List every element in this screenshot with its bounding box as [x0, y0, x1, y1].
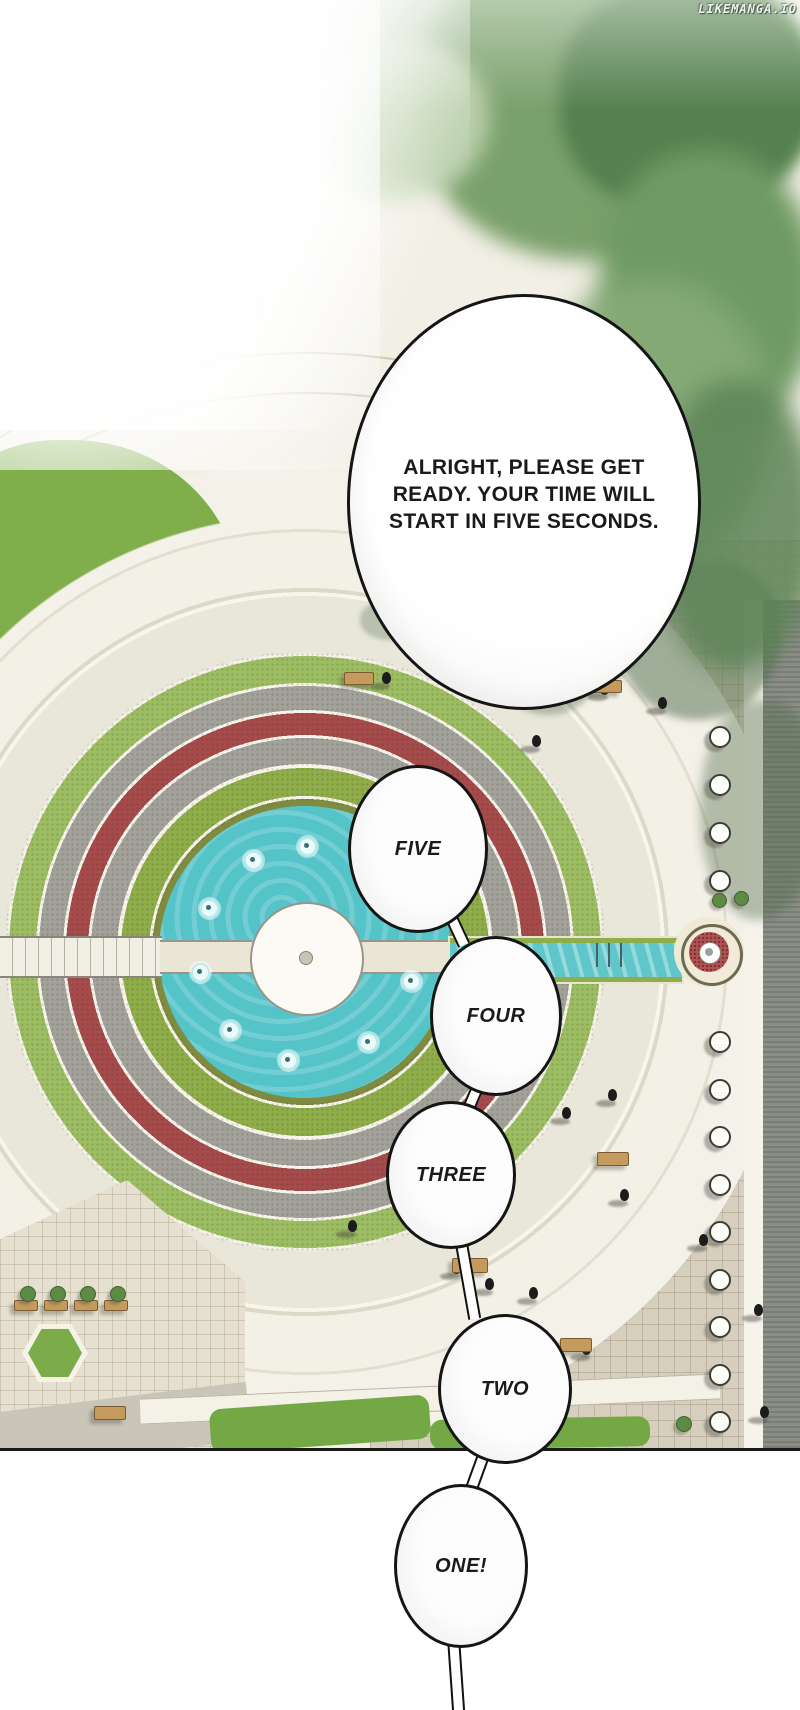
person-shadow [520, 746, 540, 753]
bollard [709, 726, 731, 748]
announcement-line-2: READY. YOUR TIME WILL [389, 481, 659, 508]
speech-bubble-two: TWO [438, 1314, 572, 1464]
person [699, 1234, 708, 1246]
fountain-jet [221, 1021, 240, 1040]
fountain-jet [279, 1051, 298, 1070]
person [562, 1107, 571, 1119]
bubble-tail [447, 1638, 465, 1710]
bench [597, 1152, 629, 1166]
bollard [709, 822, 731, 844]
small-tree [20, 1286, 36, 1302]
bollard [709, 1364, 731, 1386]
small-tree [110, 1286, 126, 1302]
small-tree [50, 1286, 66, 1302]
speech-bubble-one: ONE! [394, 1484, 528, 1648]
person [348, 1220, 357, 1232]
countdown-four-label: FOUR [467, 1005, 526, 1028]
person [658, 697, 667, 709]
fountain-statue [705, 948, 713, 956]
bollard [709, 1411, 731, 1433]
channel-gate [596, 943, 598, 967]
fountain-jet [200, 899, 219, 918]
person-shadow [570, 1354, 590, 1361]
bollard [709, 1031, 731, 1053]
countdown-three-label: THREE [416, 1164, 486, 1187]
bench [560, 1338, 592, 1352]
person [754, 1304, 763, 1316]
bollard [709, 870, 731, 892]
person [608, 1089, 617, 1101]
island-center [299, 951, 313, 965]
person [485, 1278, 494, 1290]
channel-gate [608, 943, 610, 967]
bollard [709, 774, 731, 796]
countdown-five-label: FIVE [395, 838, 441, 861]
bollard [709, 1221, 731, 1243]
person-shadow [550, 1118, 570, 1125]
countdown-one-label: ONE! [435, 1555, 487, 1578]
announcement-line-3: START IN FIVE SECONDS. [389, 508, 659, 535]
small-tree [734, 891, 749, 906]
speech-bubble-four: FOUR [430, 936, 562, 1096]
bench [344, 672, 374, 685]
person-shadow [336, 1231, 356, 1238]
speech-bubble-announcement: ALRIGHT, PLEASE GET READY. YOUR TIME WIL… [347, 294, 701, 710]
small-tree [80, 1286, 96, 1302]
person [532, 735, 541, 747]
walkway-west [0, 936, 162, 978]
bollard [709, 1126, 731, 1148]
small-tree [676, 1416, 692, 1432]
white-fade [0, 0, 800, 110]
person [382, 672, 391, 684]
pond-bridge-right [358, 940, 453, 974]
person-shadow [588, 694, 608, 701]
channel-gate [620, 943, 622, 967]
person-shadow [748, 1417, 768, 1424]
person-shadow [687, 1245, 707, 1252]
person [760, 1406, 769, 1418]
countdown-two-label: TWO [481, 1378, 529, 1401]
bollard [709, 1079, 731, 1101]
bollard [709, 1269, 731, 1291]
person [529, 1287, 538, 1299]
fountain-jet [298, 837, 317, 856]
speech-bubble-five: FIVE [348, 765, 488, 933]
person-shadow [742, 1315, 762, 1322]
announcement-text: ALRIGHT, PLEASE GET READY. YOUR TIME WIL… [389, 454, 659, 535]
park-illustration-panel [0, 0, 800, 1451]
bollard [709, 1174, 731, 1196]
person-shadow [646, 708, 666, 715]
person-shadow [517, 1298, 537, 1305]
manga-page: ALRIGHT, PLEASE GET READY. YOUR TIME WIL… [0, 0, 800, 1710]
bollard [709, 1316, 731, 1338]
bench [94, 1406, 126, 1420]
fountain-jet [244, 851, 263, 870]
person-shadow [440, 1273, 460, 1280]
speech-bubble-three: THREE [386, 1101, 516, 1249]
person-shadow [608, 1200, 628, 1207]
person [620, 1189, 629, 1201]
person-shadow [596, 1100, 616, 1107]
site-watermark: LIKEMANGA.IO [698, 2, 797, 16]
small-tree [712, 893, 727, 908]
announcement-line-1: ALRIGHT, PLEASE GET [389, 454, 659, 481]
